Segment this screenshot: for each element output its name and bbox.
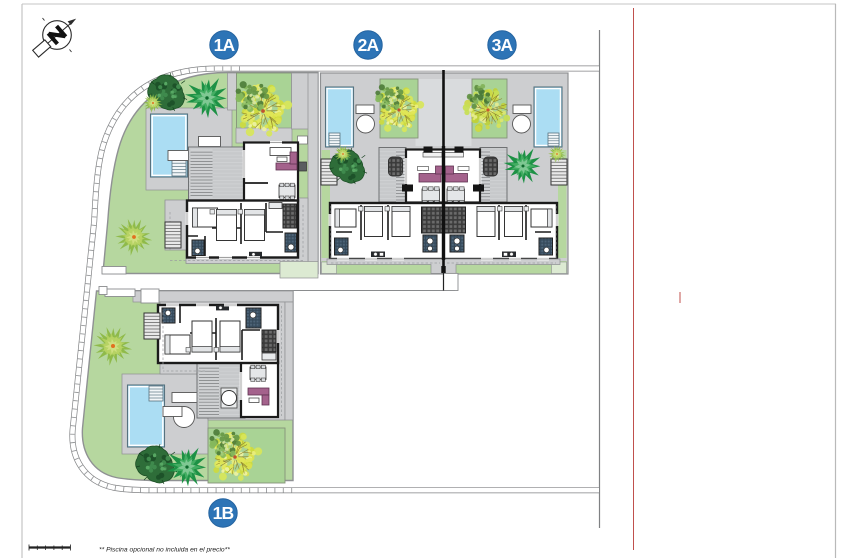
svg-text:1B: 1B	[213, 503, 234, 523]
svg-text:2A: 2A	[358, 35, 380, 55]
svg-text:** Piscina opcional no incluid: ** Piscina opcional no incluida en el pr…	[99, 547, 230, 554]
svg-text:1A: 1A	[214, 35, 236, 55]
svg-text:3A: 3A	[492, 35, 514, 55]
